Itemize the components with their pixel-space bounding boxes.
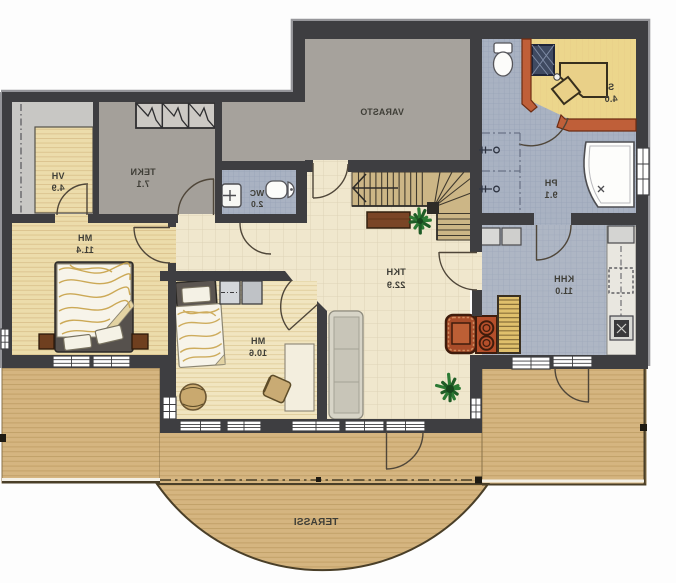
svg-text:4.0: 4.0: [604, 94, 617, 104]
svg-text:TKH: TKH: [386, 267, 406, 277]
svg-text:PH: PH: [545, 178, 558, 188]
svg-text:TEKN: TEKN: [130, 167, 155, 177]
svg-text:22.9: 22.9: [387, 280, 406, 290]
svg-text:4.9: 4.9: [51, 183, 64, 193]
svg-text:KHH: KHH: [554, 274, 574, 284]
svg-text:11.4: 11.4: [76, 245, 94, 255]
svg-text:10.6: 10.6: [249, 348, 267, 358]
svg-text:VH: VH: [52, 171, 65, 181]
svg-text:TERASSI: TERASSI: [294, 517, 339, 528]
svg-text:11.0: 11.0: [555, 286, 573, 296]
svg-text:MH: MH: [78, 233, 92, 243]
svg-text:WC: WC: [250, 188, 265, 198]
svg-text:MH: MH: [251, 336, 265, 346]
svg-text:7.1: 7.1: [136, 179, 149, 189]
svg-text:9.1: 9.1: [544, 190, 557, 200]
svg-text:VARASTO: VARASTO: [360, 107, 404, 117]
svg-text:S: S: [608, 82, 614, 92]
svg-text:2.0: 2.0: [251, 199, 263, 209]
